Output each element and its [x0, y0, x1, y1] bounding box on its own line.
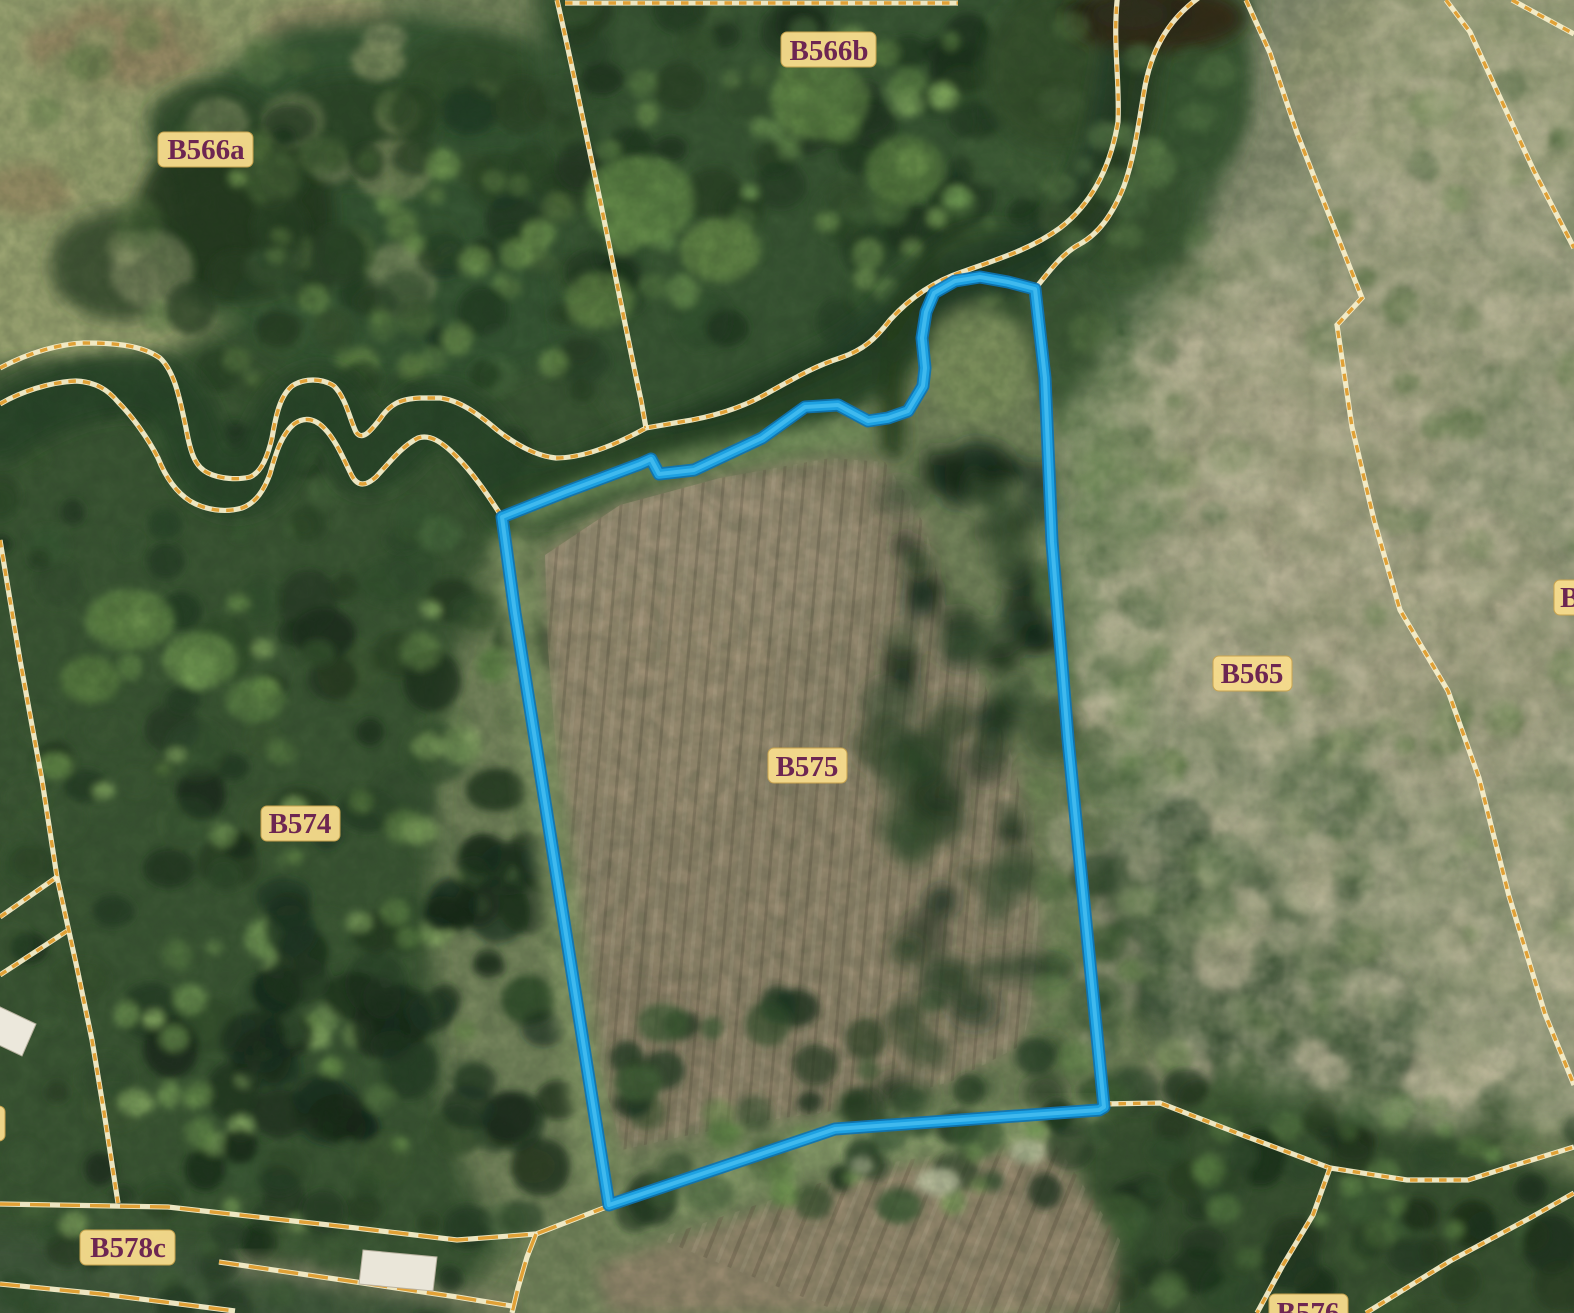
svg-text:B566b: B566b	[790, 35, 869, 67]
svg-text:B575: B575	[776, 751, 839, 783]
svg-text:B576: B576	[1277, 1297, 1340, 1313]
svg-text:B566a: B566a	[167, 134, 245, 166]
svg-text:B574: B574	[269, 808, 332, 840]
svg-text:B5: B5	[1560, 582, 1574, 614]
svg-text:B578c: B578c	[90, 1232, 166, 1264]
svg-text:B565: B565	[1221, 658, 1284, 690]
